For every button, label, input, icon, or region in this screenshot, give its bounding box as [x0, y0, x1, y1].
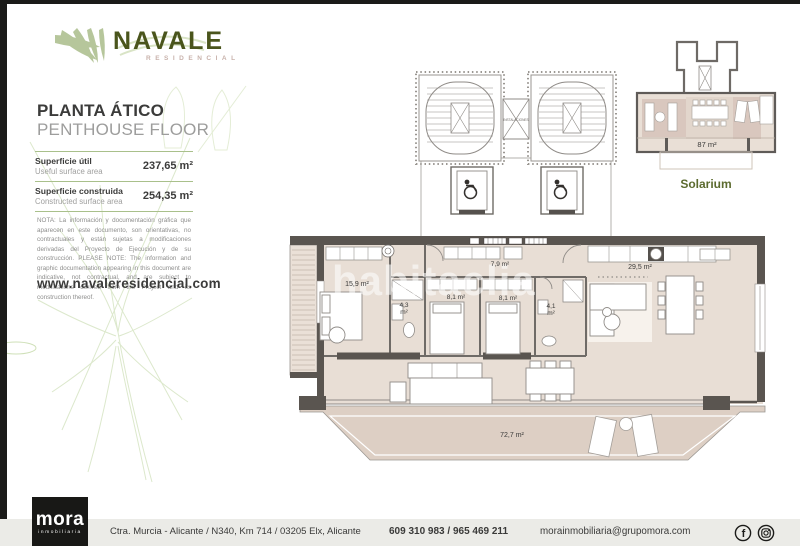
page-title-en: PENTHOUSE FLOOR — [37, 120, 209, 139]
solarium-plan — [637, 42, 775, 169]
agency-logo-name: mora — [32, 510, 88, 529]
label-hallway-area: 7,9 m² — [491, 261, 510, 268]
label-living-area: 29,5 m² — [628, 264, 652, 271]
stair-towers: INSTALACIONES — [416, 72, 616, 237]
surface-label-en: Useful surface area — [35, 167, 103, 176]
svg-text:f: f — [742, 528, 746, 540]
website-link[interactable]: www.navaleresidencial.com — [37, 276, 221, 291]
brand-tagline: RESIDENCIAL — [146, 55, 240, 62]
elevator-left — [451, 167, 493, 214]
surface-row-constructed: Superficie construida Constructed surfac… — [35, 181, 193, 212]
surface-label-en: Constructed surface area — [35, 197, 123, 206]
page-title-es: PLANTA ÁTICO — [37, 101, 209, 120]
left-border — [0, 0, 7, 546]
label-bath1-unit: m² — [400, 309, 408, 316]
surface-value: 237,65 m² — [143, 160, 193, 172]
label-bedroom2-area: 8,1 m² — [447, 294, 466, 301]
surface-value: 254,35 m² — [143, 190, 193, 202]
elevator-right — [541, 167, 583, 214]
label-bath2-area: 4,1 — [546, 303, 555, 310]
brand-wordmark: NAVALE — [113, 27, 224, 56]
page-title: PLANTA ÁTICO PENTHOUSE FLOOR — [37, 101, 209, 139]
surface-label-es: Superficie útil — [35, 156, 103, 166]
label-bedroom1-area: 15,9 m² — [345, 281, 369, 288]
footer-social: f — [733, 523, 779, 548]
surface-area-table: Superficie útil Useful surface area 237,… — [35, 151, 193, 212]
brochure-page: { "brand": { "name": "NAVALE", "tagline"… — [0, 0, 800, 546]
agency-logo: mora inmobiliaria — [32, 497, 88, 546]
surface-label-es: Superficie construida — [35, 186, 123, 196]
instagram-icon[interactable] — [758, 525, 773, 540]
surface-row-labels: Superficie útil Useful surface area — [35, 156, 103, 176]
installations-label: INSTALACIONES — [503, 118, 528, 122]
footer-email[interactable]: morainmobiliaria@grupomora.com — [540, 526, 690, 537]
surface-row-labels: Superficie construida Constructed surfac… — [35, 186, 123, 206]
label-solarium-area: 87 m² — [697, 140, 717, 149]
terrace — [300, 406, 765, 460]
solarium-caption: Solarium — [680, 177, 731, 191]
top-border — [0, 0, 800, 4]
agency-logo-sub: inmobiliaria — [32, 530, 88, 535]
label-bath1-area: 4,3 — [399, 302, 408, 309]
label-terrace-area: 72,7 m² — [500, 432, 524, 439]
facebook-icon[interactable]: f — [735, 525, 750, 540]
label-bedroom3-area: 8,1 m² — [499, 295, 518, 302]
label-bath2-unit: m² — [547, 310, 555, 317]
footer-address: Ctra. Murcia - Alicante / N340, Km 714 /… — [110, 526, 361, 537]
surface-row-useful: Superficie útil Useful surface area 237,… — [35, 151, 193, 181]
footer-phones[interactable]: 609 310 983 / 965 469 211 — [389, 526, 508, 537]
